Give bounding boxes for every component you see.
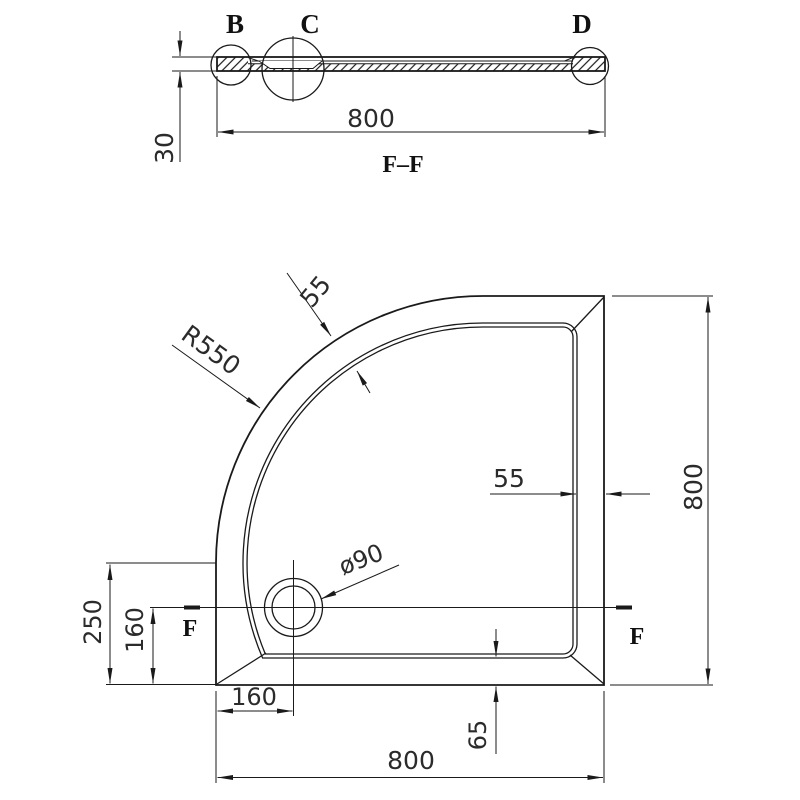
dim-dia90-label: ø90 (335, 538, 387, 580)
dim-250-label: 250 (79, 599, 107, 645)
dim-800-right-label: 800 (679, 463, 708, 511)
section-title: F–F (382, 152, 423, 178)
section-right-rim-hatch (573, 57, 605, 71)
dim-55-right-label: 55 (493, 464, 525, 493)
detail-label-d: D (572, 9, 592, 39)
shower-tray-drawing: B C D 30 800 F–F F F R550 (0, 0, 800, 800)
section-view-ff: B C D 30 800 F–F (150, 9, 609, 178)
dim-30-label: 30 (150, 132, 179, 164)
plan-view: F F R550 55 55 800 800 160 160 (79, 270, 713, 783)
section-marker-left: F (183, 616, 198, 642)
dim-800-bottom-label: 800 (387, 746, 435, 775)
section-left-rim-hatch (217, 57, 248, 71)
detail-label-c: C (300, 9, 320, 39)
dim-800-top-label: 800 (347, 104, 395, 133)
dim-160v-label: 160 (121, 607, 149, 653)
dim-160h-label: 160 (231, 683, 277, 711)
dim-800-top-extensions (217, 76, 605, 137)
dim-30-extension-lines (172, 57, 217, 71)
dim-65-label: 65 (464, 720, 492, 751)
tray-outer-boundary (216, 296, 604, 685)
technical-drawing-canvas: B C D 30 800 F–F F F R550 (0, 0, 800, 800)
detail-label-b: B (226, 9, 244, 39)
dim-r550-label: R550 (176, 319, 246, 381)
dim-55-arc-arrow-inner (357, 371, 370, 393)
dim-55-arc-label: 55 (294, 270, 337, 313)
section-marker-right: F (630, 624, 645, 650)
corner-miter-lines (217, 297, 604, 684)
